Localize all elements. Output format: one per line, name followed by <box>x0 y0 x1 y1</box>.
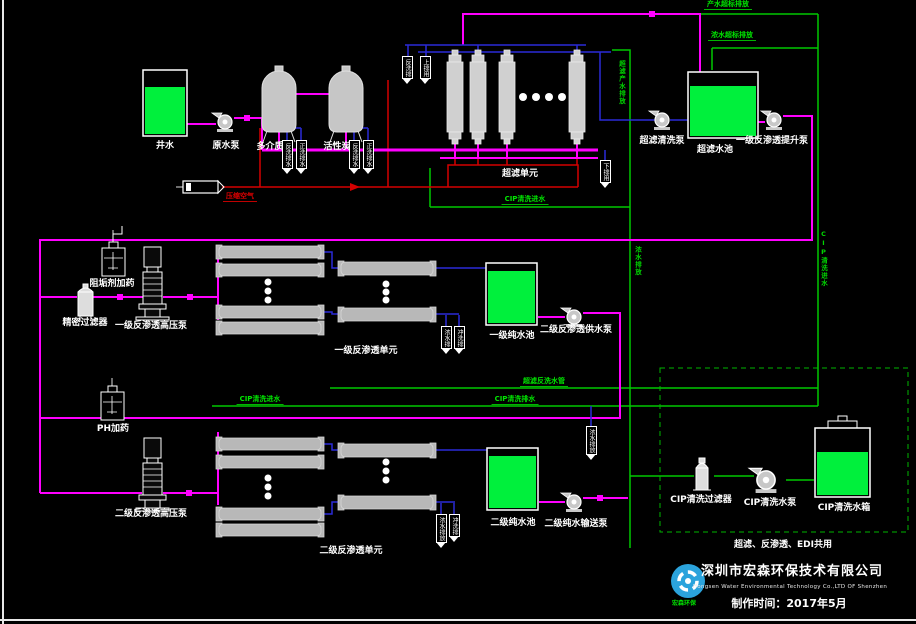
ro2-transfer-pump-label: 二级纯水输送泵 <box>544 520 607 529</box>
cip-pump-label: CIP清洗水泵 <box>744 499 797 508</box>
cip-shared-note: 超滤、反渗透、EDI共用 <box>734 541 832 550</box>
concentrate-vertical-label: 浓水排放 <box>634 246 641 276</box>
raw-pump-label: 原水泵 <box>212 142 239 151</box>
uf-tank-label: 超滤水池 <box>697 146 733 155</box>
ro2-membrane-vessels <box>216 437 436 537</box>
made-date: 制作时间：2017年5月 <box>731 598 846 609</box>
uf-product-vertical-label: 超滤产水排放 <box>618 60 625 105</box>
cip-drain-ro-label: CIP清洗排水 <box>492 396 539 405</box>
uf-right-tag: 下排用 <box>600 160 611 183</box>
air-flow-arrow <box>350 183 360 191</box>
uf-unit-label: 超滤单元 <box>502 170 538 179</box>
ro2-flush-tag: 冲洗排 <box>449 514 460 537</box>
cip-tank <box>815 416 870 497</box>
multimedia-filter-label: 多介质 <box>256 143 283 152</box>
cip-feed-ro-label: CIP清洗进水 <box>237 396 284 405</box>
ro2-pure-water-tank <box>487 448 538 510</box>
company-name-cn: 深圳市宏森环保技术有限公司 <box>701 565 883 578</box>
company-name-en: Hongsen Water Environmental Technology C… <box>693 585 887 591</box>
precision-filter-label: 精密过滤器 <box>62 319 107 328</box>
cip-pump-symbol <box>749 468 776 493</box>
multimedia-filter-vessel <box>262 66 296 142</box>
ro1-tank-label: 一级纯水池 <box>489 332 534 341</box>
ro2-feed-pump-label: 二级反渗透供水泵 <box>540 326 612 335</box>
ro2-concentrate-tag: 浓水排放 <box>436 514 447 543</box>
precision-filter <box>78 284 93 321</box>
ro1-hp-pump-label: 一级反渗透高压泵 <box>115 322 187 331</box>
ro1-membrane-vessels <box>216 245 436 335</box>
ro2-tank-label: 二级纯水池 <box>490 519 535 528</box>
ro1-ellipsis-dots <box>265 279 390 304</box>
ro1-pure-water-tank <box>486 263 537 325</box>
cip-feed-uf-label: CIP清洗进水 <box>502 196 549 205</box>
uf-left-tag-1: 反洗排 <box>402 56 413 79</box>
ro1-lift-pump-symbol <box>761 111 782 130</box>
mm-rinse-tag: 正洗排水 <box>296 140 307 169</box>
carbon-filter-vessel <box>329 66 363 142</box>
uf-clean-pump-label: 超滤清洗泵 <box>639 137 684 146</box>
ro2-unit-label: 二级反渗透单元 <box>319 547 382 556</box>
ph-dosing-tank <box>101 386 124 420</box>
ro2-hp-pump-symbol <box>136 438 169 511</box>
cip-filter-label: CIP清洗过滤器 <box>670 496 732 505</box>
cip-filter-symbol <box>693 458 711 490</box>
ro1-lift-pump-label: 一级反渗透提升泵 <box>736 137 808 146</box>
ac-rinse-tag: 正洗排水 <box>363 140 374 169</box>
cip-tank-label: CIP清洗水箱 <box>818 504 871 513</box>
antiscalant-dosing-tank <box>102 226 125 276</box>
raw-water-tank <box>143 70 187 136</box>
concentrate-overflow-label: 浓水超标排放 <box>708 32 756 41</box>
ac-backwash-tag: 反洗排水 <box>349 140 360 169</box>
carbon-filter-label: 活性炭 <box>323 143 350 152</box>
uf-ellipsis-dots <box>519 93 566 101</box>
uf-backwash-label: 超滤反洗水管 <box>520 378 568 387</box>
ro1-hp-pump-symbol <box>136 247 169 320</box>
process-flow-diagram: 井水 原水泵 多介质 活性炭 压缩空气 超滤单元 超滤清洗泵 超滤水池 一级反渗… <box>0 0 916 624</box>
cip-right-vertical-label: CIP清洗进水 <box>820 230 827 287</box>
ph-dosing-label: PH加药 <box>97 425 129 434</box>
product-overflow-label: 产水超标排放 <box>704 1 752 10</box>
air-compressor <box>183 181 224 193</box>
ro1-flush-tag: 冲洗排 <box>454 326 465 349</box>
ro2-tank-drain-tag: 浓水排放 <box>586 426 597 455</box>
mm-backwash-tag: 反洗排水 <box>282 140 293 169</box>
antiscalant-label: 阻垢剂加药 <box>89 280 134 289</box>
ro1-unit-label: 一级反渗透单元 <box>334 347 397 356</box>
uf-left-tag-2: 上排用 <box>420 56 431 79</box>
ro2-hp-pump-label: 二级反渗透高压泵 <box>115 510 187 519</box>
uf-water-tank <box>688 72 758 138</box>
raw-water-pump-symbol <box>212 113 233 132</box>
compressed-air-label: 压缩空气 <box>223 193 257 202</box>
company-logo <box>671 564 705 598</box>
raw-tank-label: 井水 <box>156 142 174 151</box>
logo-subtext: 宏森环保 <box>672 601 696 607</box>
ro1-concentrate-tag: 浓水排 <box>441 326 452 349</box>
